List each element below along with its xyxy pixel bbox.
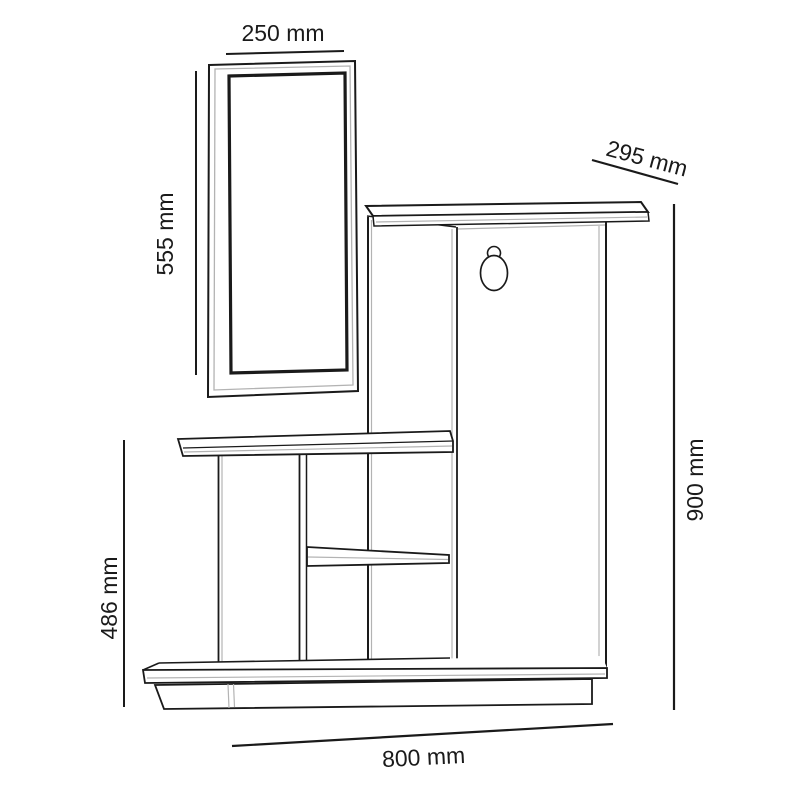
furniture-dimension-drawing: 250 mm 555 mm 295 mm 900 mm 486 mm 800 m… xyxy=(0,0,800,800)
knob-drop xyxy=(481,256,508,291)
dimension-label: 555 mm xyxy=(152,192,178,275)
mirror xyxy=(208,61,358,397)
dimension-label: 800 mm xyxy=(381,742,465,772)
dimension-total-height: 900 mm xyxy=(674,204,708,710)
dimension-label: 486 mm xyxy=(96,556,122,639)
dimension-left-section-height: 486 mm xyxy=(96,440,124,707)
diagram-canvas: 250 mm 555 mm 295 mm 900 mm 486 mm 800 m… xyxy=(0,0,800,800)
dimension-line xyxy=(226,51,344,54)
dimension-mirror-height: 555 mm xyxy=(152,71,196,375)
dimension-label: 250 mm xyxy=(241,20,324,46)
dimension-mirror-width: 250 mm xyxy=(226,20,344,54)
dimension-top-depth: 295 mm xyxy=(592,135,691,184)
top-shelf xyxy=(178,431,453,456)
base xyxy=(143,656,607,709)
dimension-line xyxy=(232,724,613,746)
dimension-total-width: 800 mm xyxy=(232,724,613,772)
cabinet-front-panel xyxy=(457,222,606,668)
base-plinth-front xyxy=(155,679,592,709)
dimension-label: 900 mm xyxy=(682,438,708,521)
mirror-glass xyxy=(229,73,347,373)
